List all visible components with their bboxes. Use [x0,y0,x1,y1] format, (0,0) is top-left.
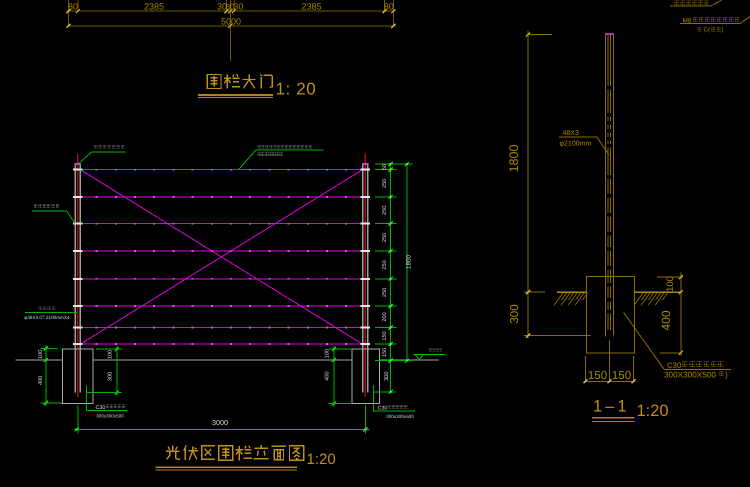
svg-text:150: 150 [588,370,607,382]
svg-text:150: 150 [382,331,388,340]
svg-text:C30: C30 [378,406,388,412]
svg-text:250: 250 [382,288,388,297]
svg-text:1:20: 1:20 [637,402,669,420]
svg-text:300x300x500: 300x300x500 [96,414,124,419]
svg-text:5000: 5000 [221,16,241,26]
svg-text:300: 300 [509,304,521,323]
svg-text:150: 150 [382,348,388,357]
svg-text:100: 100 [665,276,676,292]
svg-text:300x300x500: 300x300x500 [386,414,414,419]
svg-text:C(: C( [704,27,711,34]
svg-text:50: 50 [382,164,388,170]
svg-text:1: 20: 1: 20 [276,80,317,99]
svg-text:200: 200 [382,312,388,321]
svg-text:φ2100mm: φ2100mm [560,140,592,147]
svg-text:2385: 2385 [144,1,164,11]
svg-text:300: 300 [107,372,113,381]
svg-text:250: 250 [382,206,388,215]
svg-text:100: 100 [324,349,330,358]
svg-text:2385: 2385 [301,1,321,11]
svg-text:48X3: 48X3 [563,130,579,137]
svg-text:300: 300 [384,372,390,381]
svg-text:): ) [722,27,724,34]
svg-text:C30: C30 [667,361,682,370]
svg-text:30: 30 [233,1,243,11]
svg-text:400: 400 [324,371,330,380]
svg-text:1–1: 1–1 [593,398,630,416]
svg-text:): ) [725,370,728,379]
svg-text:400: 400 [38,376,44,385]
svg-text:1800: 1800 [406,254,413,269]
svg-text:φ48X3.0: φ48X3.0 [24,315,42,320]
svg-text:80: 80 [68,1,78,11]
svg-text:C30: C30 [96,405,106,411]
svg-text:300X300X500: 300X300X500 [664,370,716,379]
svg-text:250: 250 [382,233,388,242]
svg-text:100: 100 [38,350,44,359]
svg-text:1:20: 1:20 [307,451,336,468]
svg-text:250: 250 [382,260,388,269]
svg-text:400: 400 [659,310,673,330]
svg-text:3000: 3000 [212,418,228,427]
svg-text:80: 80 [384,1,394,11]
svg-text:1800: 1800 [507,145,521,173]
svg-text:150: 150 [612,370,631,382]
svg-text:2100mmX4: 2100mmX4 [46,315,70,320]
svg-text:250: 250 [382,179,388,188]
svg-text:100: 100 [107,350,113,359]
